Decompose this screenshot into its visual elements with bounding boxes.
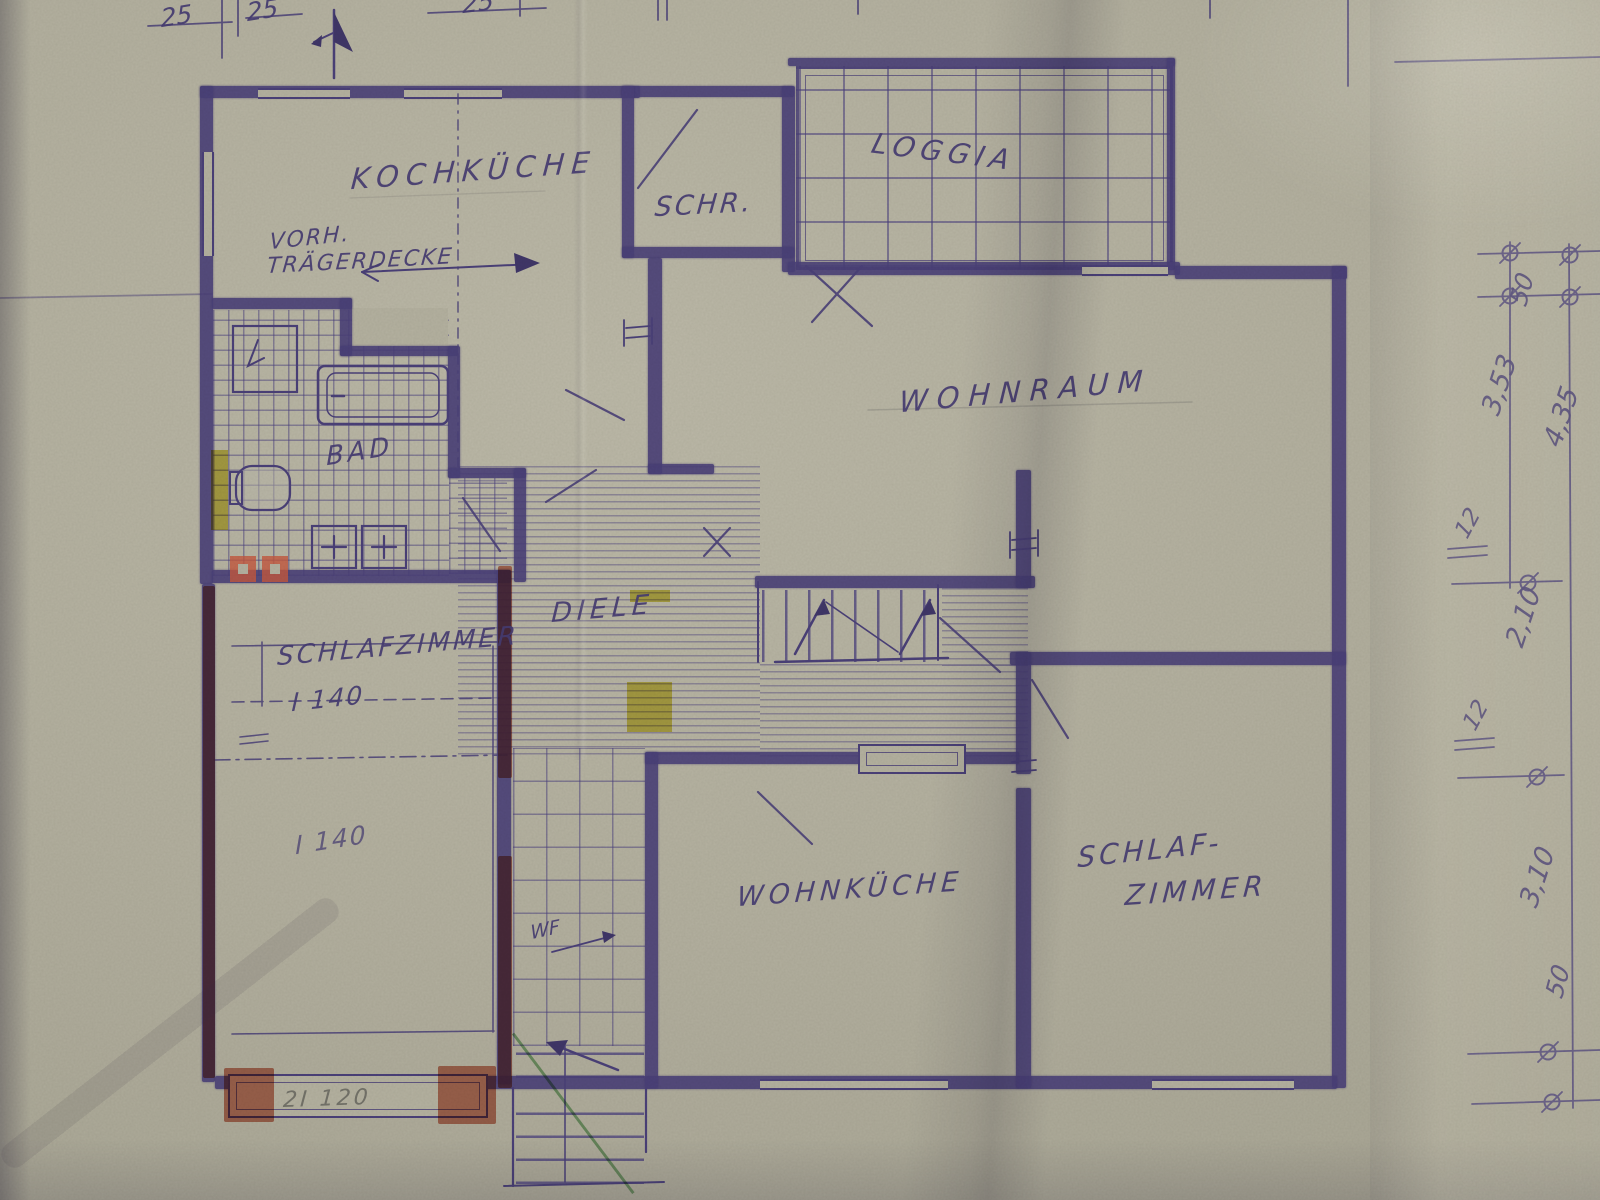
label-bed1: I 140 <box>291 682 365 715</box>
dimension-25-2: 25 <box>246 0 279 25</box>
label-loggia: LOGGIA <box>869 130 1019 175</box>
dimension-right-435: 4,35 <box>1540 383 1583 451</box>
dimension-right-50b: 50 <box>1542 961 1574 1001</box>
label-schlafzimmer-right-1: SCHLAF- <box>1077 829 1223 872</box>
label-beam-note: 2I 120 <box>282 1087 371 1112</box>
dimension-right-210: 2,10 <box>1502 583 1545 651</box>
floorplan-scan: 25 25 25 KOCHKÜCHE VORH. TRÄGERDECKE SCH… <box>0 0 1600 1200</box>
label-bad: BAD <box>326 433 393 470</box>
label-wohnraum: WOHNRAUM <box>898 366 1152 417</box>
label-schlafzimmer-left: SCHLAFZIMMER <box>277 623 520 670</box>
labels-layer: 25 25 25 KOCHKÜCHE VORH. TRÄGERDECKE SCH… <box>0 0 1600 1200</box>
dimension-right-12a: 12 <box>1452 504 1485 543</box>
label-wf: WF <box>530 918 560 943</box>
label-wohnkueche: WOHNKÜCHE <box>736 868 964 911</box>
dimension-right-12b: 12 <box>1460 696 1493 735</box>
label-bed2: I 140 <box>295 822 368 859</box>
label-kochkueche: KOCHKÜCHE <box>350 148 598 194</box>
dimension-25-1: 25 <box>160 1 193 31</box>
dimension-25-3: 25 <box>462 0 494 17</box>
dimension-right-353: 3,53 <box>1478 351 1521 419</box>
label-diele: DIELE <box>551 591 655 627</box>
label-schrank: SCHR. <box>654 189 755 221</box>
dimension-right-50a: 50 <box>1506 269 1538 309</box>
label-schlafzimmer-right-2: ZIMMER <box>1124 872 1269 910</box>
dimension-right-310: 3,10 <box>1516 843 1559 911</box>
